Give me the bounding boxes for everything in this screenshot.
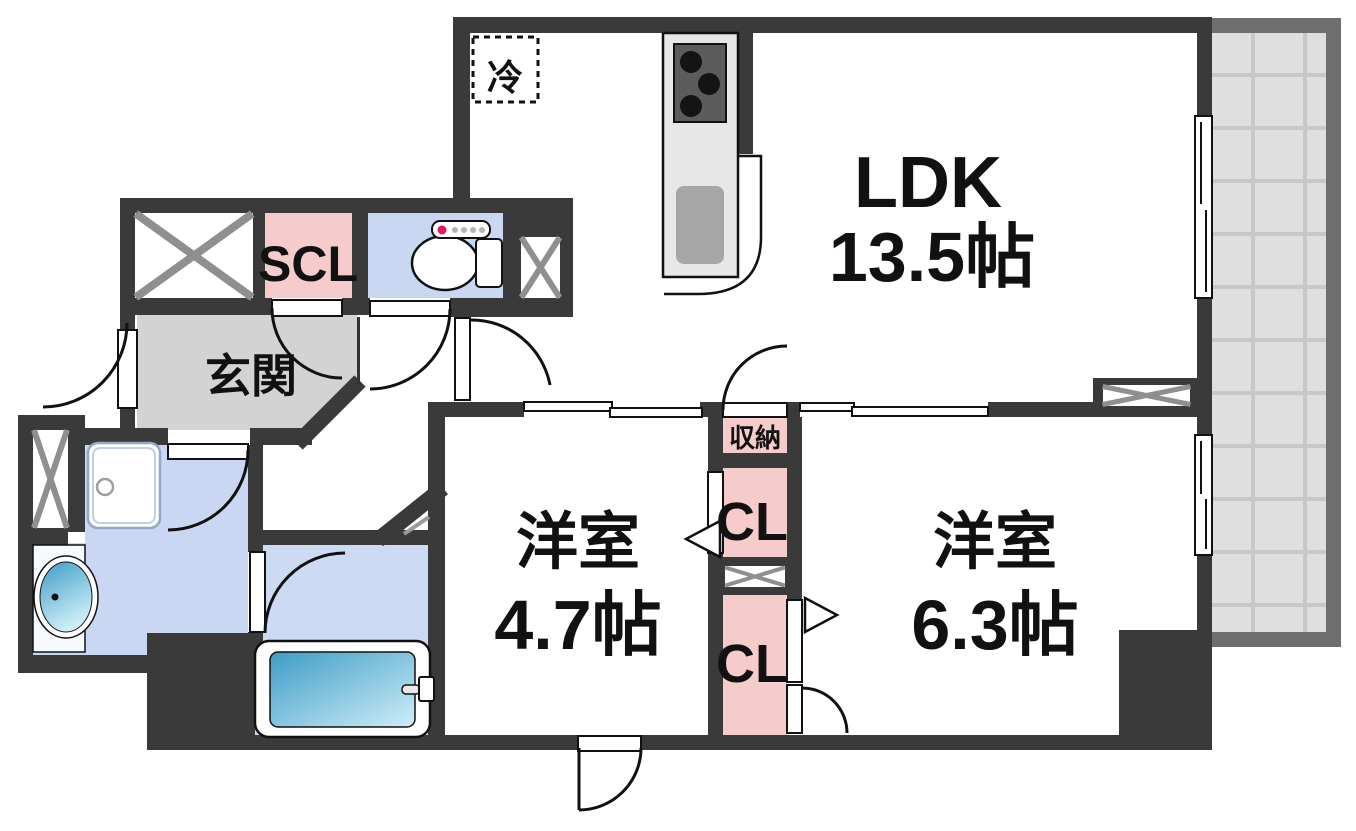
room1-size-label: 4.7帖 xyxy=(494,586,661,664)
closet-1-label: CL xyxy=(716,492,788,552)
burner-icon xyxy=(680,51,702,73)
closet-2-label: CL xyxy=(716,634,788,694)
floorplan-canvas: LDK 13.5帖 洋室 4.7帖 洋室 6.3帖 玄関 SCL 収納 CL C… xyxy=(0,0,1356,831)
room2-sliding-door xyxy=(852,407,988,416)
floorplan-drawing: LDK 13.5帖 洋室 4.7帖 洋室 6.3帖 玄関 SCL 収納 CL C… xyxy=(0,0,1356,831)
toilet-button-red xyxy=(438,226,447,235)
bathroom-door-panel xyxy=(250,552,265,632)
entrance-label: 玄関 xyxy=(205,350,297,402)
room1-sliding-door xyxy=(524,402,612,411)
room2-door-panel xyxy=(787,685,802,733)
room1-label: 洋室 xyxy=(516,508,640,577)
room1-bottom-door-swing xyxy=(579,748,641,810)
ldk-balcony-window xyxy=(1195,116,1212,298)
ldk-door-panel xyxy=(455,318,470,400)
room1-sliding-door xyxy=(610,408,702,417)
bathroom-fixtures xyxy=(255,641,434,737)
toilet-button xyxy=(461,227,467,233)
tub-handle-icon xyxy=(402,685,420,694)
balcony-frame-top xyxy=(1212,18,1341,33)
washroom-door-panel xyxy=(168,444,248,459)
toilet-button xyxy=(452,227,458,233)
kitchen-sink-icon xyxy=(676,186,724,264)
washer-drain-icon xyxy=(97,479,113,495)
burner-icon xyxy=(680,95,702,117)
entrance-step-line xyxy=(357,317,360,385)
entrance-door-panel xyxy=(118,330,137,408)
toilet-button xyxy=(479,227,485,233)
room2-balcony-window xyxy=(1195,435,1212,555)
storage-door-panel xyxy=(723,403,787,417)
bathtub-water xyxy=(270,652,415,727)
storage-label: 収納 xyxy=(729,423,781,453)
burner-icon xyxy=(698,73,720,95)
toilet-tank-icon xyxy=(476,239,502,287)
balcony xyxy=(1212,18,1341,647)
toilet-button xyxy=(470,227,476,233)
scl-door-panel xyxy=(272,300,342,316)
ldk-label: LDK xyxy=(854,143,1002,223)
balcony-frame-right xyxy=(1326,18,1341,647)
toilet-bowl-icon xyxy=(412,236,478,290)
basin-drain-dot xyxy=(52,594,59,601)
balcony-floor xyxy=(1212,33,1326,632)
shoe-closet-label: SCL xyxy=(258,236,358,292)
toilet-door-panel xyxy=(370,301,450,316)
room1-bottom-door-panel xyxy=(578,736,641,751)
entrance-door-swing xyxy=(43,323,127,407)
closet-2-door-panel xyxy=(787,600,802,682)
room2-sliding-door xyxy=(800,403,854,411)
balcony-frame-bottom xyxy=(1212,632,1341,647)
refrigerator-label: 冷 xyxy=(487,57,523,98)
toilet-door-swing xyxy=(370,309,450,389)
wash-basin-icon xyxy=(40,562,92,632)
room2-label: 洋室 xyxy=(933,508,1057,577)
room2-size-label: 6.3帖 xyxy=(911,586,1078,664)
tub-faucet-icon xyxy=(419,677,434,701)
ldk-size-label: 13.5帖 xyxy=(829,218,1035,296)
